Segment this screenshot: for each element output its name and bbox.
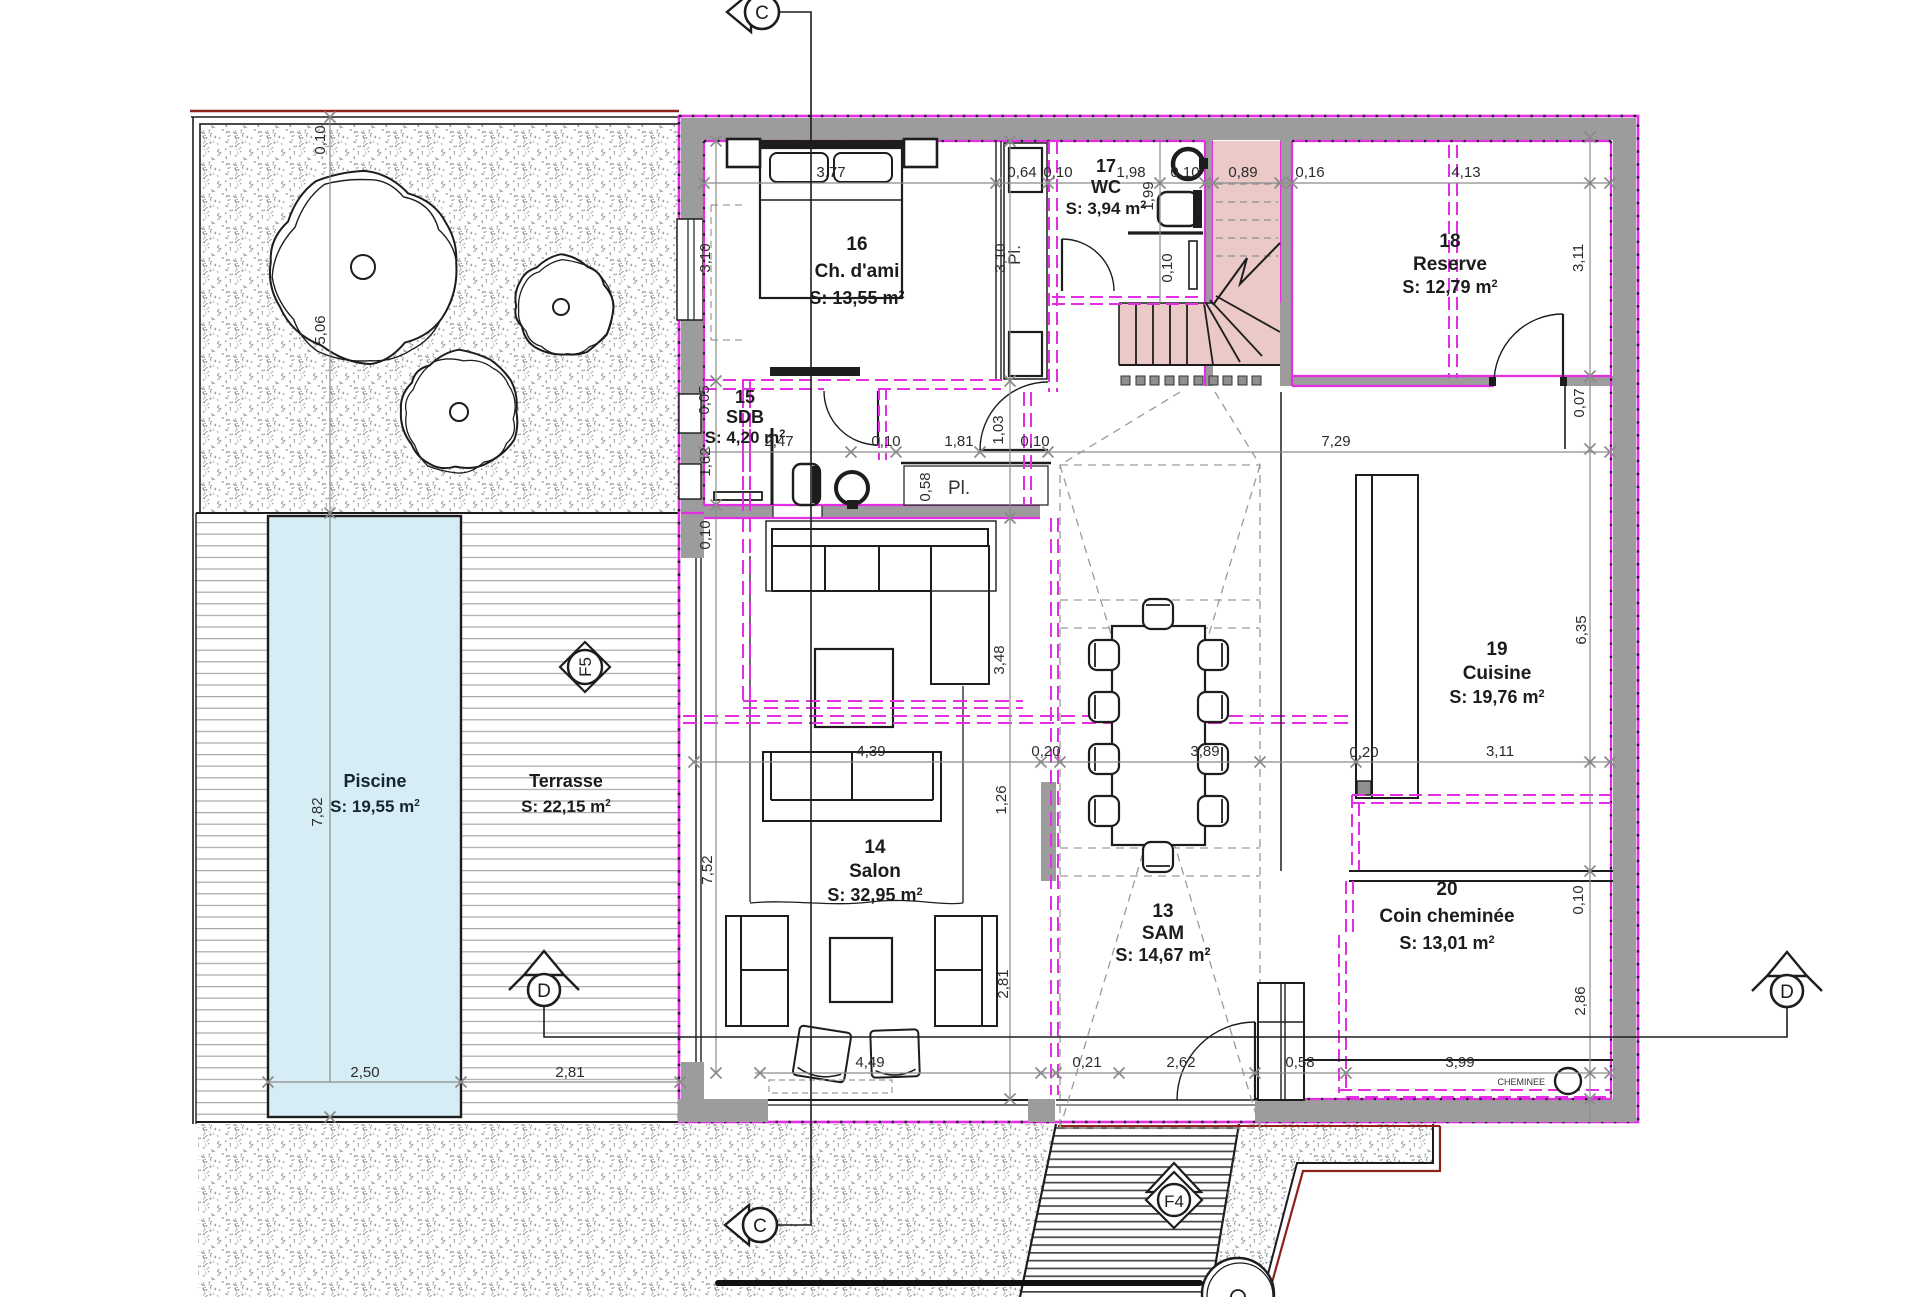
svg-text:0,64: 0,64 — [1007, 164, 1036, 181]
svg-text:0,10: 0,10 — [871, 433, 900, 450]
svg-text:5,06: 5,06 — [312, 315, 329, 344]
svg-text:Cuisine: Cuisine — [1463, 663, 1532, 684]
svg-text:Reserve: Reserve — [1413, 254, 1487, 275]
svg-text:6,35: 6,35 — [1573, 615, 1590, 644]
svg-text:Ch. d'ami: Ch. d'ami — [815, 261, 900, 282]
svg-text:SDB: SDB — [726, 407, 764, 427]
svg-text:2,81: 2,81 — [995, 969, 1012, 998]
svg-text:0,10: 0,10 — [1043, 164, 1072, 181]
svg-text:0,10: 0,10 — [1020, 433, 1049, 450]
svg-text:0,21: 0,21 — [1072, 1054, 1101, 1071]
svg-text:C: C — [755, 3, 769, 24]
svg-text:Pl.: Pl. — [948, 478, 970, 499]
svg-text:18: 18 — [1439, 231, 1460, 252]
svg-text:17: 17 — [1096, 156, 1116, 176]
svg-text:14: 14 — [864, 837, 886, 858]
svg-text:S: 19,55 m2: S: 19,55 m2 — [330, 797, 420, 816]
svg-text:S: 14,67 m2: S: 14,67 m2 — [1115, 945, 1210, 965]
svg-text:0,58: 0,58 — [1285, 1054, 1314, 1071]
svg-text:0,10: 0,10 — [1570, 885, 1587, 914]
svg-text:16: 16 — [846, 234, 867, 255]
svg-text:Terrasse: Terrasse — [529, 771, 603, 791]
svg-text:1,62: 1,62 — [697, 447, 714, 476]
svg-text:2,62: 2,62 — [1166, 1054, 1195, 1071]
svg-text:3,99: 3,99 — [1445, 1054, 1474, 1071]
svg-text:3,11: 3,11 — [1570, 244, 1587, 272]
svg-text:Salon: Salon — [849, 861, 901, 882]
svg-text:2,47: 2,47 — [764, 433, 793, 450]
svg-text:0,10: 0,10 — [1170, 164, 1199, 181]
svg-text:0,10: 0,10 — [697, 520, 714, 549]
svg-text:2,81: 2,81 — [555, 1064, 584, 1081]
svg-text:0,20: 0,20 — [1349, 744, 1378, 761]
svg-text:19: 19 — [1486, 639, 1507, 660]
svg-text:4,39: 4,39 — [856, 743, 885, 760]
svg-text:4,49: 4,49 — [855, 1054, 884, 1071]
svg-text:D: D — [537, 981, 551, 1002]
svg-text:3,77: 3,77 — [816, 164, 845, 181]
svg-text:F5: F5 — [576, 657, 595, 677]
svg-text:SAM: SAM — [1142, 923, 1184, 944]
svg-text:2,86: 2,86 — [1572, 986, 1589, 1015]
svg-text:7,82: 7,82 — [309, 797, 326, 826]
svg-text:CHEMINEE: CHEMINEE — [1497, 1077, 1545, 1087]
svg-text:4,13: 4,13 — [1451, 164, 1480, 181]
svg-text:D: D — [1780, 982, 1794, 1003]
svg-text:7,29: 7,29 — [1321, 433, 1350, 450]
svg-text:1,81: 1,81 — [944, 433, 973, 450]
svg-text:0,07: 0,07 — [1571, 388, 1588, 417]
svg-text:S: 22,15 m2: S: 22,15 m2 — [521, 797, 611, 816]
svg-text:15: 15 — [735, 387, 755, 407]
svg-text:S: 13,01 m2: S: 13,01 m2 — [1399, 933, 1494, 953]
svg-text:20: 20 — [1436, 879, 1457, 900]
svg-text:3,11: 3,11 — [1486, 743, 1514, 760]
svg-text:3,10: 3,10 — [992, 243, 1009, 272]
svg-text:1,26: 1,26 — [993, 785, 1010, 814]
svg-text:7,52: 7,52 — [699, 855, 716, 884]
svg-text:3,89: 3,89 — [1190, 743, 1219, 760]
svg-text:1,99: 1,99 — [1140, 181, 1157, 210]
svg-text:0,89: 0,89 — [1228, 164, 1257, 181]
svg-text:0,10: 0,10 — [312, 125, 329, 154]
svg-text:S: 19,76 m2: S: 19,76 m2 — [1449, 687, 1544, 707]
svg-text:C: C — [753, 1216, 767, 1237]
svg-text:0,05: 0,05 — [696, 385, 713, 414]
svg-text:13: 13 — [1152, 901, 1173, 922]
svg-text:3,10: 3,10 — [697, 243, 714, 272]
svg-text:F4: F4 — [1164, 1192, 1184, 1211]
svg-text:S: 13,55 m2: S: 13,55 m2 — [809, 288, 904, 308]
svg-text:1,03: 1,03 — [990, 415, 1007, 444]
svg-text:S: 3,94 m2: S: 3,94 m2 — [1066, 199, 1147, 218]
svg-text:1,98: 1,98 — [1116, 164, 1145, 181]
svg-text:0,20: 0,20 — [1031, 743, 1060, 760]
svg-text:0,16: 0,16 — [1295, 164, 1324, 181]
svg-text:2,50: 2,50 — [350, 1064, 379, 1081]
svg-text:0,10: 0,10 — [1159, 253, 1176, 282]
svg-text:Piscine: Piscine — [343, 771, 406, 791]
svg-text:Coin cheminée: Coin cheminée — [1379, 906, 1514, 927]
svg-text:0,58: 0,58 — [917, 472, 934, 501]
svg-text:S: 32,95 m2: S: 32,95 m2 — [827, 885, 922, 905]
svg-text:3,48: 3,48 — [991, 645, 1008, 674]
svg-text:S: 12,79 m2: S: 12,79 m2 — [1402, 277, 1497, 297]
